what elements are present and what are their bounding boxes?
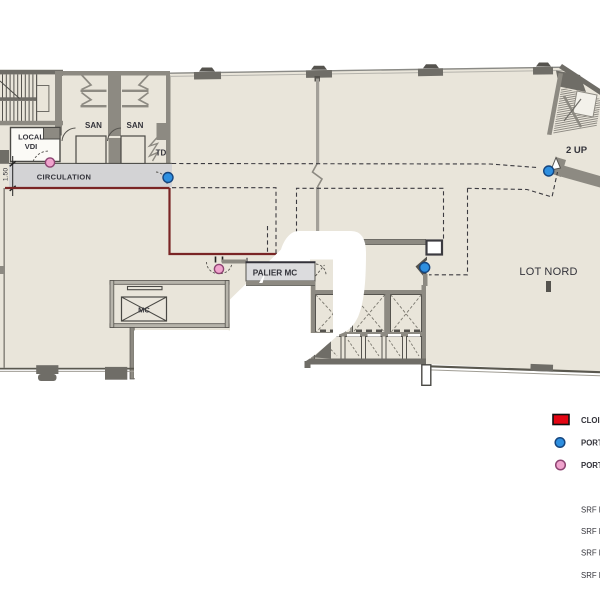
svg-text:PALIER MC: PALIER MC	[253, 269, 298, 278]
svg-text:2 UP: 2 UP	[566, 145, 588, 156]
svg-text:SRF LOT: SRF LOT	[581, 571, 600, 580]
svg-text:VDI: VDI	[25, 142, 38, 151]
svg-text:LOCAL: LOCAL	[18, 133, 44, 142]
svg-text:MC: MC	[138, 306, 150, 315]
svg-text:SAN: SAN	[85, 121, 102, 130]
svg-text:1.50: 1.50	[3, 168, 10, 181]
svg-text:PORTE: PORTE	[581, 461, 600, 470]
svg-text:SRF LOT: SRF LOT	[581, 527, 600, 536]
svg-text:TD: TD	[156, 149, 167, 158]
svg-text:PORTE: PORTE	[581, 439, 600, 448]
svg-text:LOT NORD: LOT NORD	[519, 266, 577, 278]
svg-text:SRF LOT: SRF LOT	[581, 506, 600, 515]
svg-text:SRF LOT: SRF LOT	[581, 549, 600, 558]
svg-text:CLOISON: CLOISON	[581, 416, 600, 425]
svg-text:CIRCULATION: CIRCULATION	[37, 173, 91, 182]
svg-text:SAN: SAN	[127, 121, 144, 130]
